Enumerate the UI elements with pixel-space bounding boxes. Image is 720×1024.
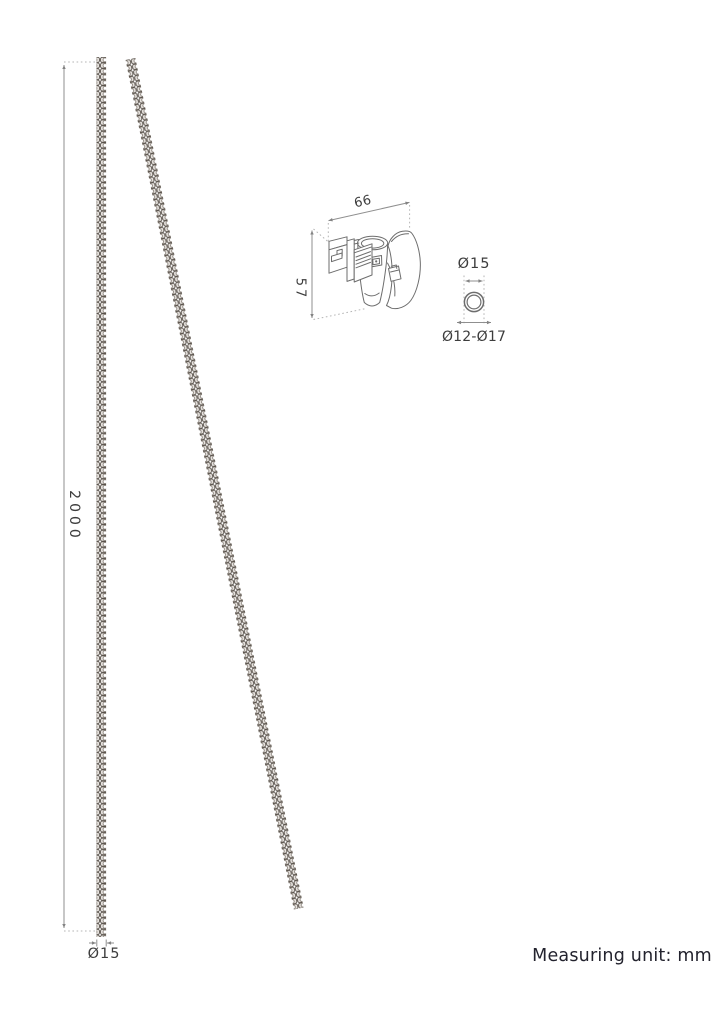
dim-label-bracket-height: 57 (294, 278, 307, 301)
dim-label-ring-clamp-range: Ø12-Ø17 (442, 330, 506, 344)
chain-straight (97, 57, 107, 937)
technical-drawing (0, 0, 720, 1024)
chain-angled (126, 58, 304, 909)
dim-label-ring-outer-diameter: Ø15 (458, 257, 491, 272)
ring-detail (457, 276, 491, 325)
dim-label-bracket-width: 66 (353, 194, 373, 211)
measuring-unit-note: Measuring unit: mm (532, 946, 712, 966)
dim-label-chain-diameter: Ø15 (88, 947, 121, 962)
mounting-bracket-drawing (329, 231, 420, 309)
dim-label-chain-length: 2000 (67, 490, 81, 542)
technical-drawing-page: 2000 Ø15 66 57 Ø15 Ø12-Ø17 Measuring uni… (0, 0, 720, 1024)
